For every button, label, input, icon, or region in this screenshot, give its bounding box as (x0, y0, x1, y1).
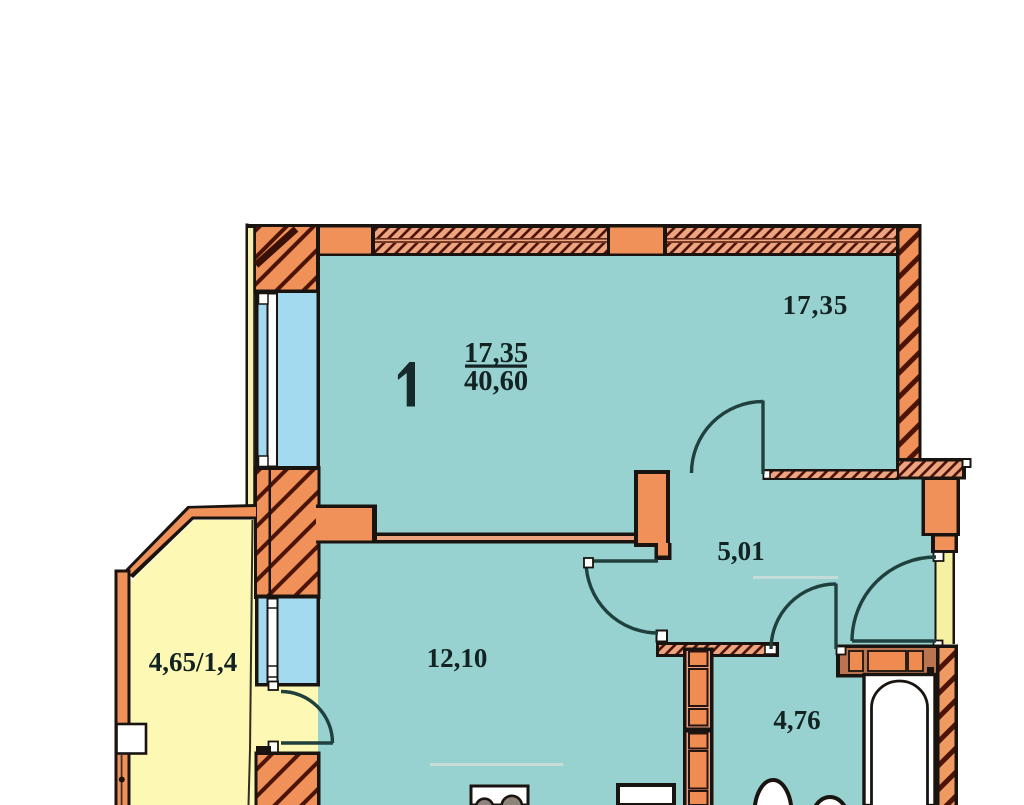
svg-text:17,35: 17,35 (783, 290, 849, 320)
svg-text:17,35: 17,35 (464, 338, 528, 369)
svg-text:12,10: 12,10 (427, 643, 488, 673)
svg-text:4,65/1,4: 4,65/1,4 (149, 647, 238, 677)
svg-text:5,01: 5,01 (717, 536, 764, 566)
svg-text:4,76: 4,76 (773, 705, 820, 735)
svg-text:40,60: 40,60 (464, 366, 528, 397)
